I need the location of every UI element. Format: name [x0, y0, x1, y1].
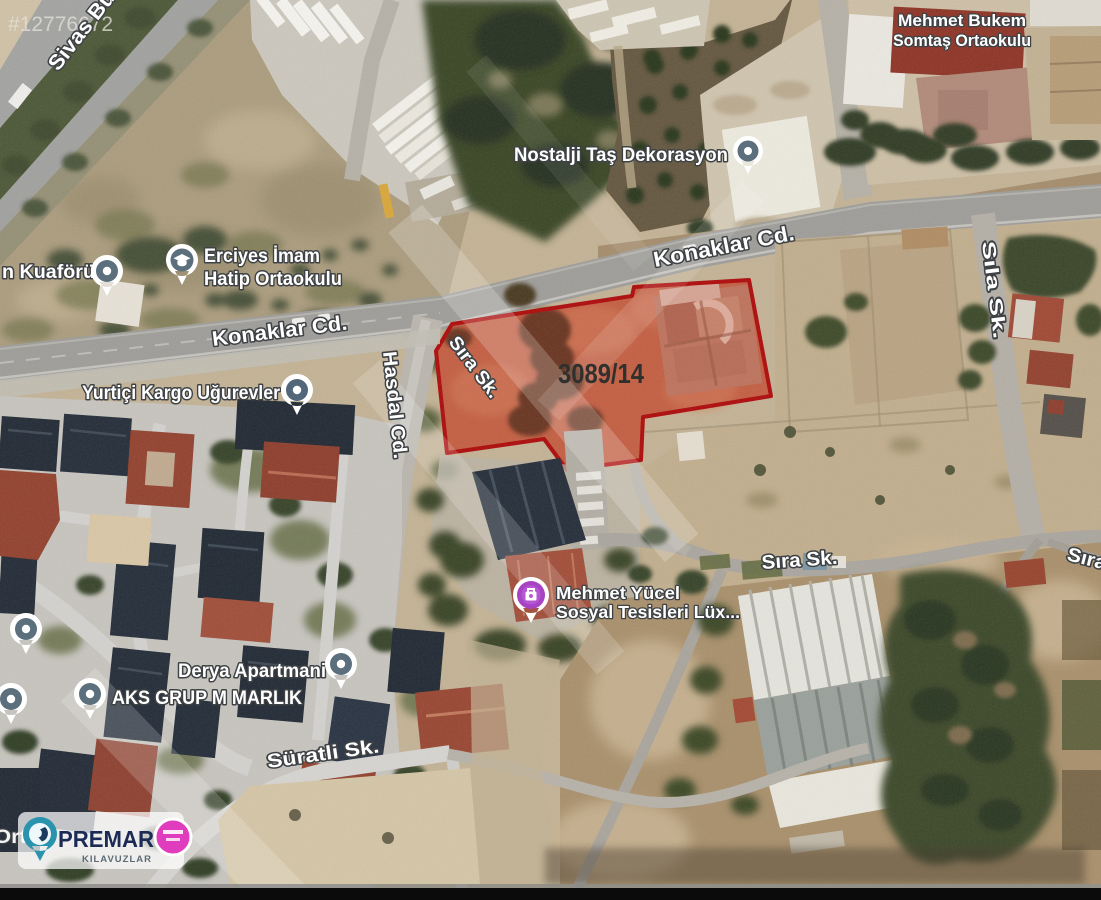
svg-text:Sosyal Tesisleri Lüx...: Sosyal Tesisleri Lüx...	[556, 602, 740, 622]
svg-text:Nostalji Taş Dekorasyon: Nostalji Taş Dekorasyon	[514, 145, 728, 166]
svg-text:KILAVUZLAR: KILAVUZLAR	[82, 854, 152, 865]
svg-text:Somtaş Ortaokulu: Somtaş Ortaokulu	[893, 32, 1031, 50]
svg-text:Mehmet Yücel: Mehmet Yücel	[556, 583, 680, 603]
svg-text:n Kuaförü: n Kuaförü	[2, 261, 95, 283]
svg-text:PREMAR: PREMAR	[58, 826, 154, 852]
svg-text:Mehmet Bukem: Mehmet Bukem	[898, 12, 1026, 30]
svg-text:Yurtiçi Kargo Uğurevler: Yurtiçi Kargo Uğurevler	[82, 382, 280, 404]
svg-text:Hatip Ortaokulu: Hatip Ortaokulu	[204, 268, 342, 290]
svg-text:AKS GRUP M MARLIK: AKS GRUP M MARLIK	[112, 687, 302, 709]
svg-text:Derya Apartmani: Derya Apartmani	[178, 661, 326, 682]
svg-text:3089/14: 3089/14	[558, 358, 644, 389]
svg-text:Erciyes İmam: Erciyes İmam	[204, 244, 320, 267]
